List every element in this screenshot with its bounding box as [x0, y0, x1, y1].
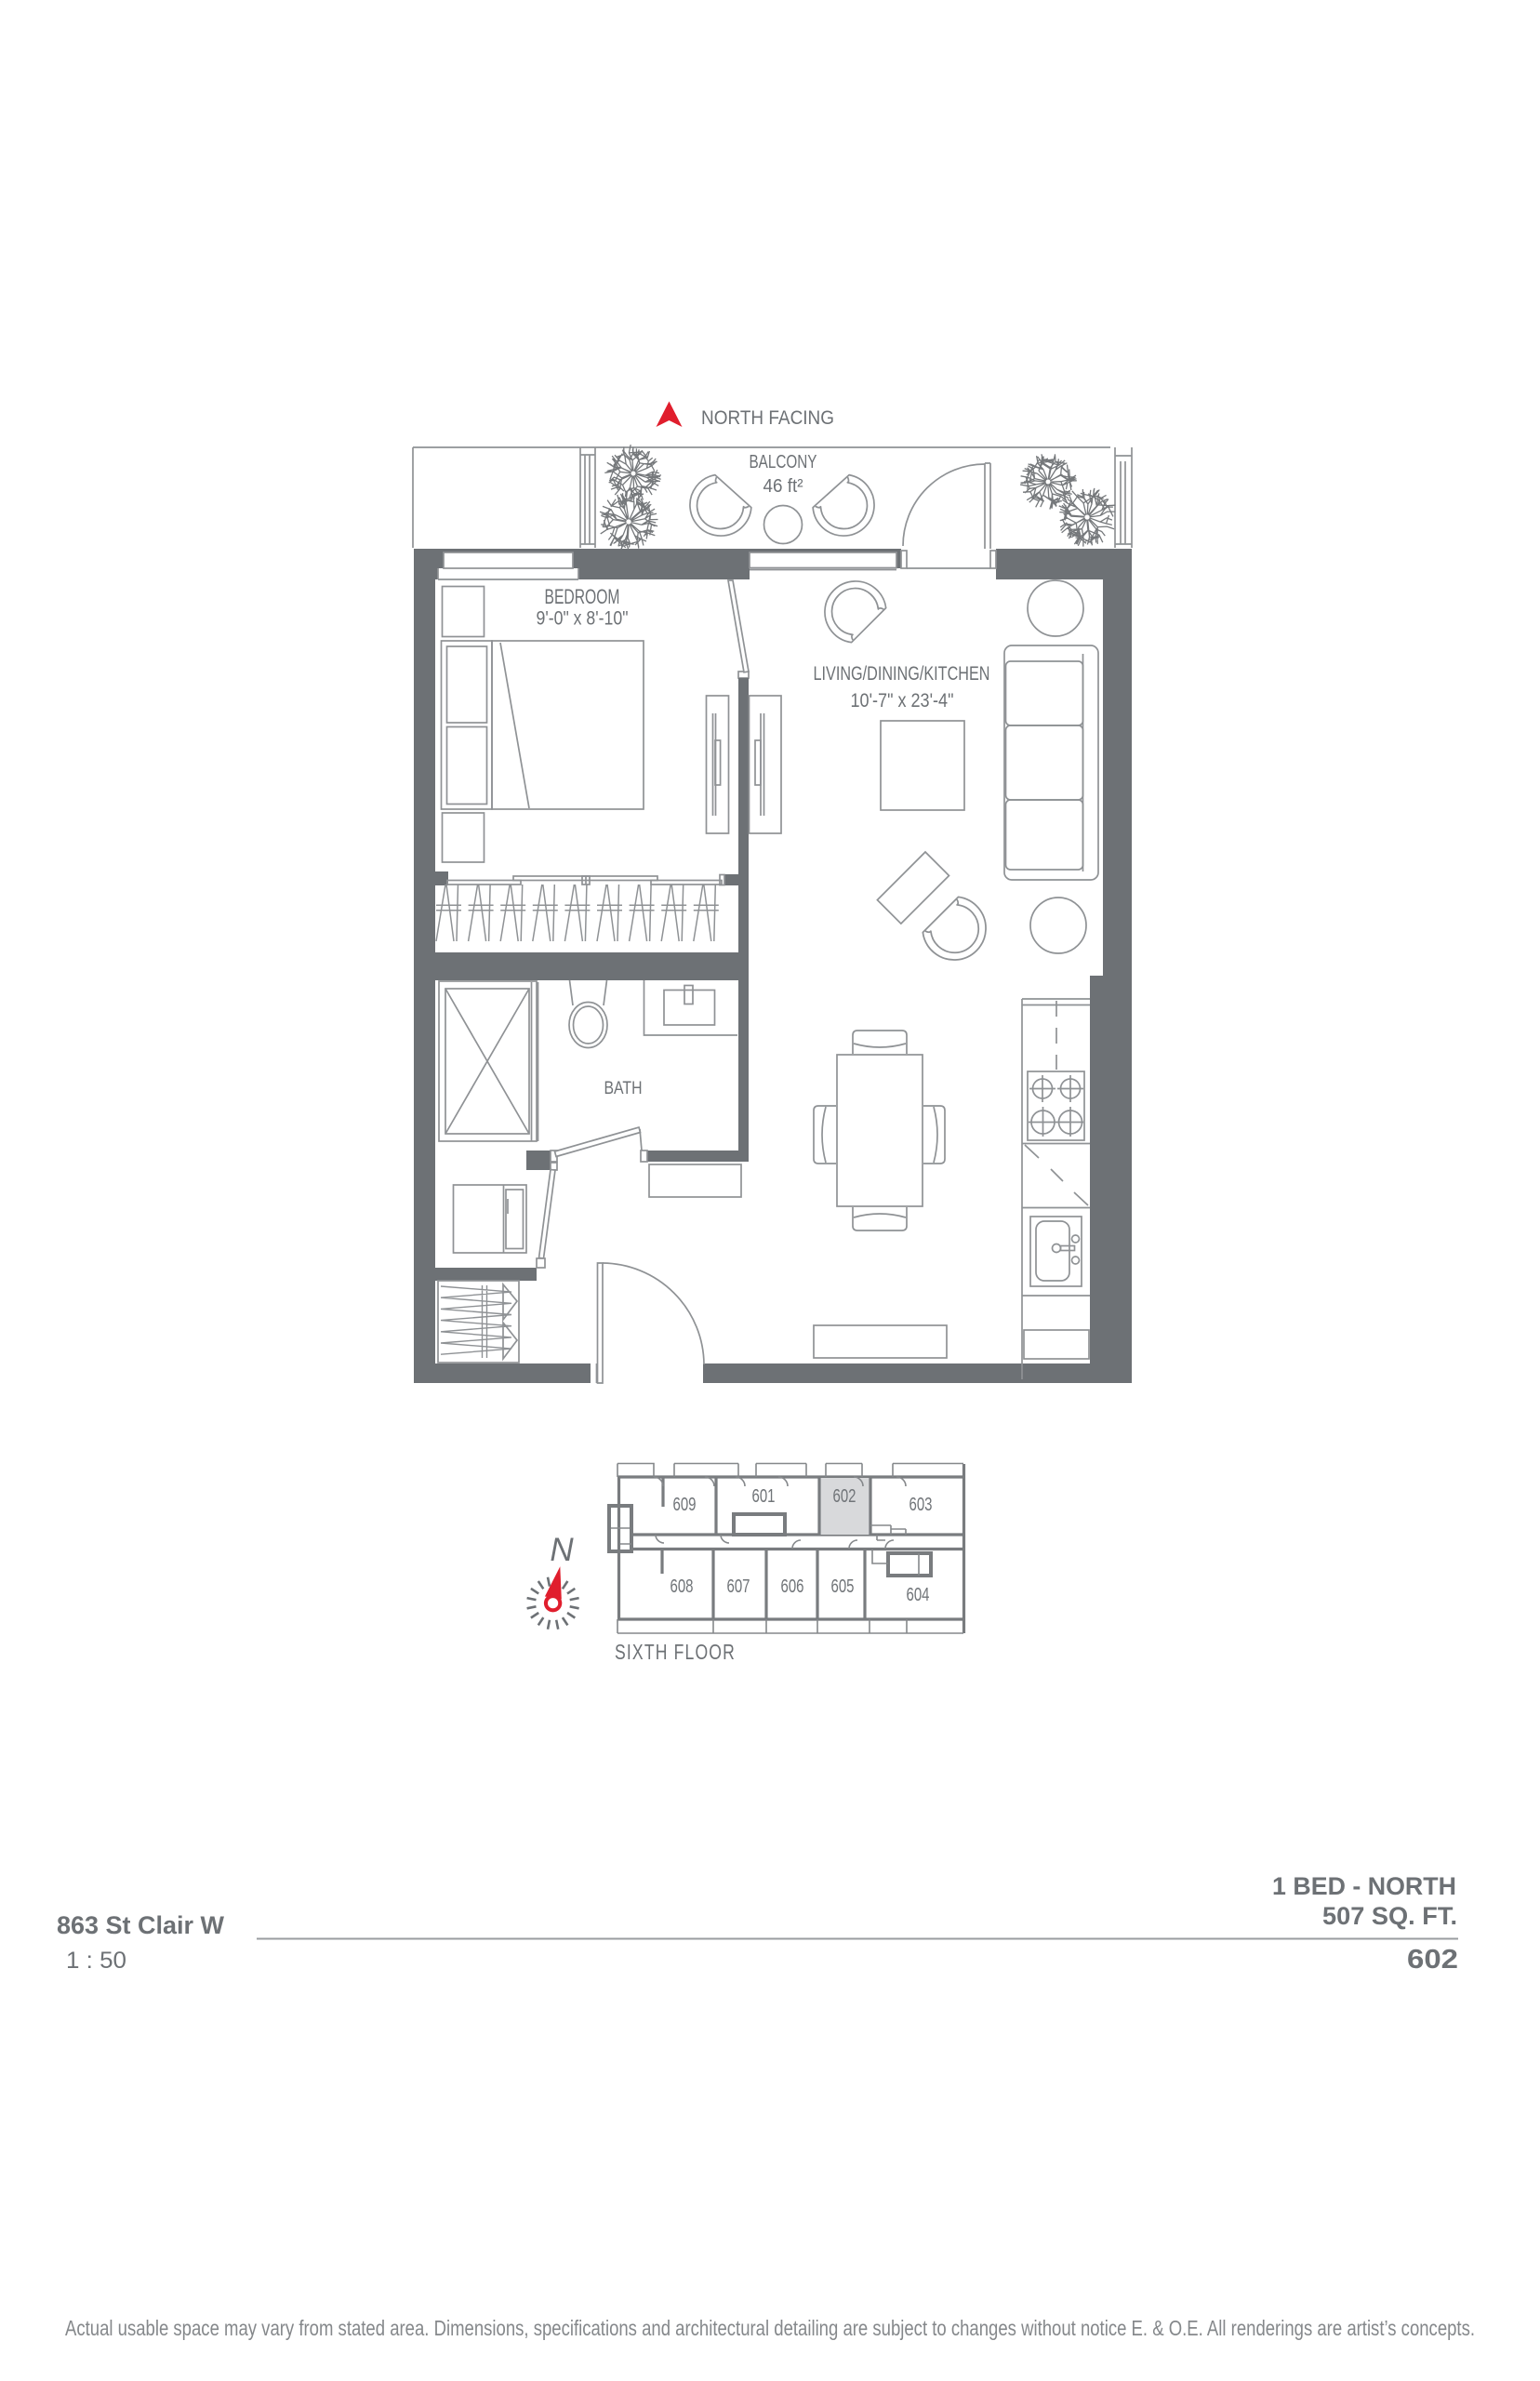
svg-text:863 St Clair W: 863 St Clair W — [57, 1911, 225, 1939]
svg-text:602: 602 — [1407, 1945, 1458, 1975]
svg-text:604: 604 — [907, 1585, 930, 1605]
svg-text:609: 609 — [673, 1495, 697, 1515]
svg-text:BEDROOM: BEDROOM — [545, 585, 620, 608]
svg-text:46 ft²: 46 ft² — [763, 476, 803, 497]
svg-text:603: 603 — [909, 1495, 933, 1515]
svg-text:BALCONY: BALCONY — [750, 452, 817, 472]
svg-text:607: 607 — [727, 1576, 750, 1597]
svg-text:LIVING/DINING/KITCHEN: LIVING/DINING/KITCHEN — [814, 663, 990, 685]
svg-text:BATH: BATH — [604, 1079, 643, 1098]
svg-text:602: 602 — [833, 1486, 856, 1507]
svg-text:608: 608 — [670, 1576, 694, 1597]
svg-text:1 : 50: 1 : 50 — [66, 1948, 126, 1974]
svg-text:10'-7" x 23'-4": 10'-7" x 23'-4" — [851, 690, 954, 712]
svg-text:601: 601 — [752, 1486, 776, 1507]
svg-text:1 BED - NORTH: 1 BED - NORTH — [1272, 1872, 1456, 1900]
svg-text:SIXTH FLOOR: SIXTH FLOOR — [615, 1640, 736, 1664]
svg-text:Actual usable space may vary f: Actual usable space may vary from stated… — [65, 2316, 1475, 2340]
svg-text:N: N — [550, 1532, 574, 1568]
svg-text:507 SQ. FT.: 507 SQ. FT. — [1322, 1902, 1457, 1930]
svg-text:605: 605 — [831, 1576, 855, 1597]
svg-text:9'-0" x 8'-10": 9'-0" x 8'-10" — [537, 608, 629, 630]
svg-text:NORTH FACING: NORTH FACING — [701, 407, 834, 429]
svg-text:606: 606 — [781, 1576, 804, 1597]
